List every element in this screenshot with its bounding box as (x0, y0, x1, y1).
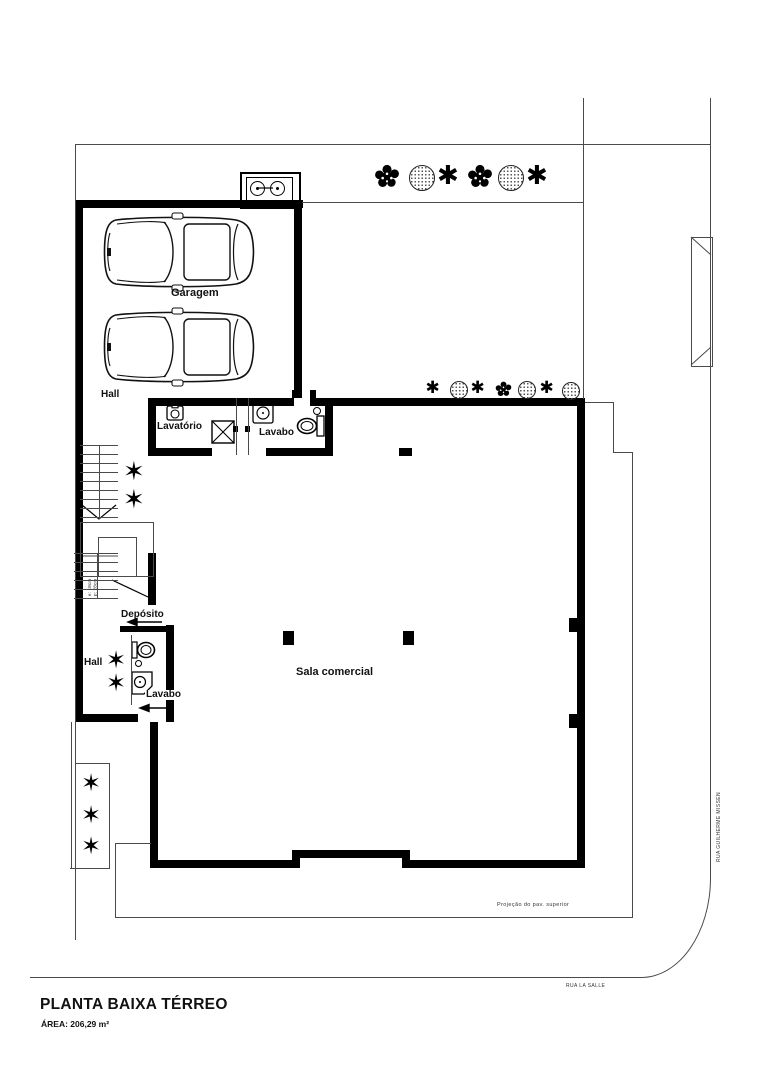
wall-segment (569, 618, 577, 632)
canopy-tree-icon (450, 381, 468, 399)
room-label-lavatory: Lavatório (157, 422, 202, 432)
room-label-garage: Garagem (171, 288, 219, 299)
canopy-tree-icon (518, 381, 536, 399)
wall-segment (569, 714, 577, 728)
site-line (248, 398, 249, 455)
car-top-view-icon (100, 307, 258, 387)
asterisk-plant-icon: ✱ (526, 163, 548, 189)
wall-segment (402, 860, 585, 868)
star-plant-icon: ✶ (106, 671, 126, 695)
valve-icon (313, 407, 321, 415)
wall-segment (166, 625, 174, 722)
wall-segment (148, 448, 212, 456)
room-label-lavabo-upper: Lavabo (259, 428, 294, 438)
room-label-hall-upper: Hall (101, 390, 119, 400)
stair-rail-line (97, 553, 98, 599)
wall-segment (75, 200, 83, 722)
site-line (585, 402, 613, 403)
wall-segment (292, 850, 410, 858)
canopy-tree-icon (562, 382, 580, 400)
meter-dial-icon (250, 181, 265, 196)
site-line (115, 917, 633, 918)
stair-tread (74, 553, 118, 554)
star-plant-icon: ✶ (81, 803, 101, 827)
wall-segment (403, 631, 414, 645)
site-line (236, 398, 237, 455)
site-line (75, 144, 76, 940)
stair-tread (74, 580, 118, 581)
site-line (613, 452, 632, 453)
shaft-x-icon (211, 420, 235, 444)
site-line (115, 843, 116, 918)
wall-segment (325, 398, 333, 456)
wall-segment (75, 200, 303, 208)
site-line (302, 202, 583, 203)
wall-segment (283, 631, 294, 645)
asterisk-plant-icon: ✱ (426, 380, 440, 397)
wall-segment (120, 626, 166, 632)
bush-plant-icon (467, 164, 493, 190)
site-line (30, 977, 641, 978)
star-plant-icon: ✶ (81, 771, 101, 795)
room-label-hall-lower: Hall (84, 658, 102, 668)
site-line (76, 763, 110, 764)
wall-segment (399, 448, 412, 456)
site-line (632, 452, 633, 918)
asterisk-plant-icon: ✱ (437, 163, 459, 189)
asterisk-plant-icon: ✱ (540, 380, 554, 397)
toilet-icon (296, 413, 326, 439)
toilet-icon (131, 639, 157, 661)
room-label-lavabo-lower: Lavabo (145, 690, 182, 700)
site-line (71, 722, 72, 868)
wall-segment (266, 448, 333, 456)
room-label-deposit: Depósito (121, 610, 164, 620)
stair-tread (74, 598, 118, 599)
floor-drain-icon (135, 660, 142, 667)
wall-segment (150, 860, 294, 868)
car-top-view-icon (100, 212, 258, 292)
wall-segment (292, 390, 298, 398)
street-label-bottom: RUA LA SALLE (566, 984, 605, 989)
stair-rail-line (99, 445, 100, 519)
room-label-commercial: Sala comercial (296, 667, 373, 678)
wall-segment (310, 398, 577, 406)
stair-annotation-line1: e: 18cm (87, 579, 92, 596)
street-label-right: RUA GUILHERME MISSEN (717, 772, 722, 862)
drawing-area-label: ÁREA: 206,29 m² (41, 1019, 109, 1029)
site-line (70, 868, 110, 869)
meter-dial-icon (270, 181, 285, 196)
stair-tread (74, 571, 118, 572)
wall-segment (150, 722, 158, 868)
driveway-ramp-outline (691, 237, 713, 367)
bush-plant-icon (495, 381, 512, 398)
canopy-tree-icon (409, 165, 435, 191)
bush-plant-icon (374, 164, 400, 190)
site-line (710, 98, 711, 879)
wall-segment (294, 200, 302, 398)
star-plant-icon: ✶ (123, 459, 145, 485)
street-corner-curve (641, 878, 711, 978)
site-line (75, 144, 711, 145)
site-line (613, 402, 614, 452)
stair-tread (74, 562, 118, 563)
wall-segment (75, 714, 138, 722)
star-plant-icon: ✶ (123, 487, 145, 513)
floor-plan-canvas: Garagem Hall Lavatório Lavabo Depósito H… (0, 0, 763, 1080)
asterisk-plant-icon: ✱ (471, 380, 485, 397)
drawing-title: PLANTA BAIXA TÉRREO (40, 996, 228, 1014)
wall-segment (310, 390, 316, 398)
site-line (583, 98, 584, 399)
projection-annotation: Projeção do pav. superior (497, 903, 569, 909)
wall-segment (148, 398, 294, 406)
canopy-tree-icon (498, 165, 524, 191)
site-line (115, 843, 151, 844)
site-line (131, 635, 132, 705)
site-line (109, 763, 110, 868)
stair-tread (74, 589, 118, 590)
star-plant-icon: ✶ (81, 834, 101, 858)
wall-segment (577, 398, 585, 868)
